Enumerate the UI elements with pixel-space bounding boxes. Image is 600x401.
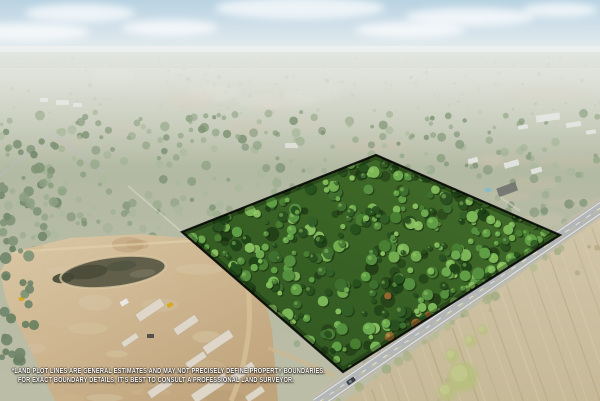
aerial-scene bbox=[0, 0, 600, 401]
disclaimer-line1: *LAND PLOT LINES ARE GENERAL ESTIMATES A… bbox=[12, 368, 300, 377]
disclaimer-line2: FOR EXACT BOUNDARY DETAILS, IT'S BEST TO… bbox=[12, 377, 300, 386]
atmospheric-haze bbox=[0, 46, 600, 166]
aerial-photo: *LAND PLOT LINES ARE GENERAL ESTIMATES A… bbox=[0, 0, 600, 401]
disclaimer: *LAND PLOT LINES ARE GENERAL ESTIMATES A… bbox=[12, 368, 300, 385]
